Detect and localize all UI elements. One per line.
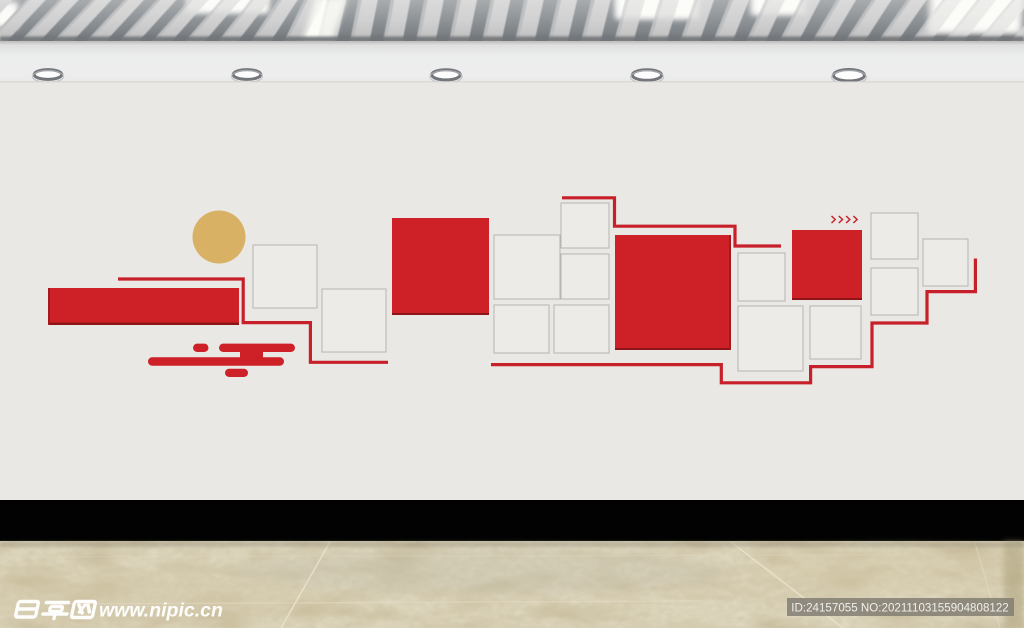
svg-text:www.nipic.cn: www.nipic.cn xyxy=(99,600,223,622)
svg-text:ID:24157055 NO:202111031559048: ID:24157055 NO:20211103155904808122 xyxy=(791,602,1008,615)
